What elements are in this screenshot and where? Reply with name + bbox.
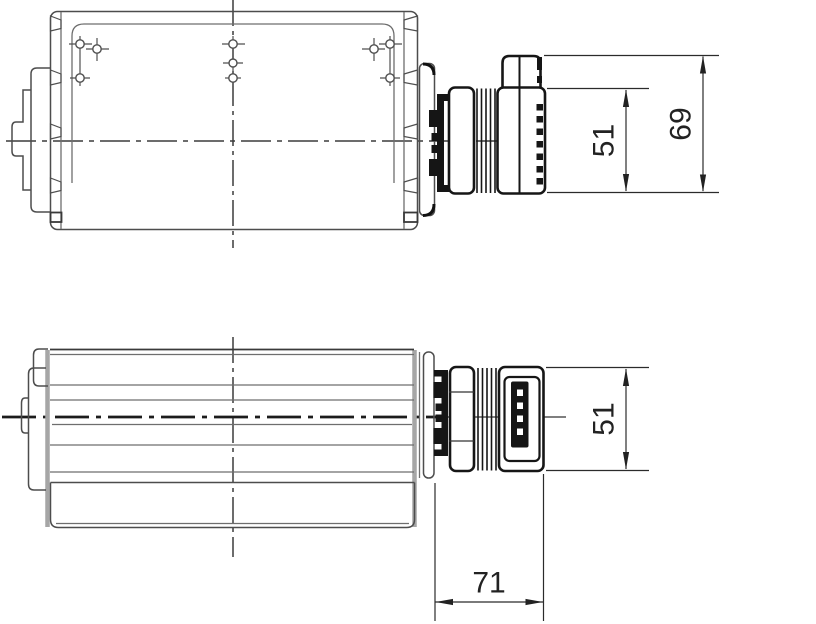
motor-coupling-top: [429, 94, 450, 192]
motor-ribs-front: [478, 368, 496, 471]
mounting-holes-left: [69, 36, 109, 86]
dim-label-71: 71: [472, 567, 505, 600]
motor-connector-housing-top: [503, 56, 541, 88]
drawing-sheet: 51 69: [0, 0, 816, 624]
dimension-motor-body-height-front: 51: [546, 368, 649, 471]
dim-label-69: 69: [665, 107, 698, 140]
mounting-holes-center: [222, 36, 245, 86]
motor-vent-slots: [537, 104, 544, 185]
motor-top: [429, 56, 545, 194]
dimension-motor-overall-height: 69: [665, 56, 707, 192]
blower-wheel-front: [22, 349, 435, 528]
fan-technical-drawing: 51 69: [0, 0, 816, 624]
motor-front: [434, 367, 544, 471]
dimension-motor-length: 71: [435, 474, 544, 621]
mounting-holes-right: [362, 36, 402, 86]
bearing-bracket-top: [12, 68, 50, 212]
top-view: 51 69: [6, 0, 719, 248]
motor-front-section-top: [449, 88, 474, 194]
motor-body-top: [498, 88, 546, 194]
motor-coupling-front: [434, 370, 449, 456]
dim-label-51-front: 51: [588, 402, 621, 435]
bearing-hub-front: [22, 398, 29, 433]
motor-front-section-front: [450, 367, 474, 471]
dim-label-51-top: 51: [588, 124, 621, 157]
front-view: 51 71: [2, 337, 649, 621]
wheel-right-end-cap: [424, 352, 435, 478]
